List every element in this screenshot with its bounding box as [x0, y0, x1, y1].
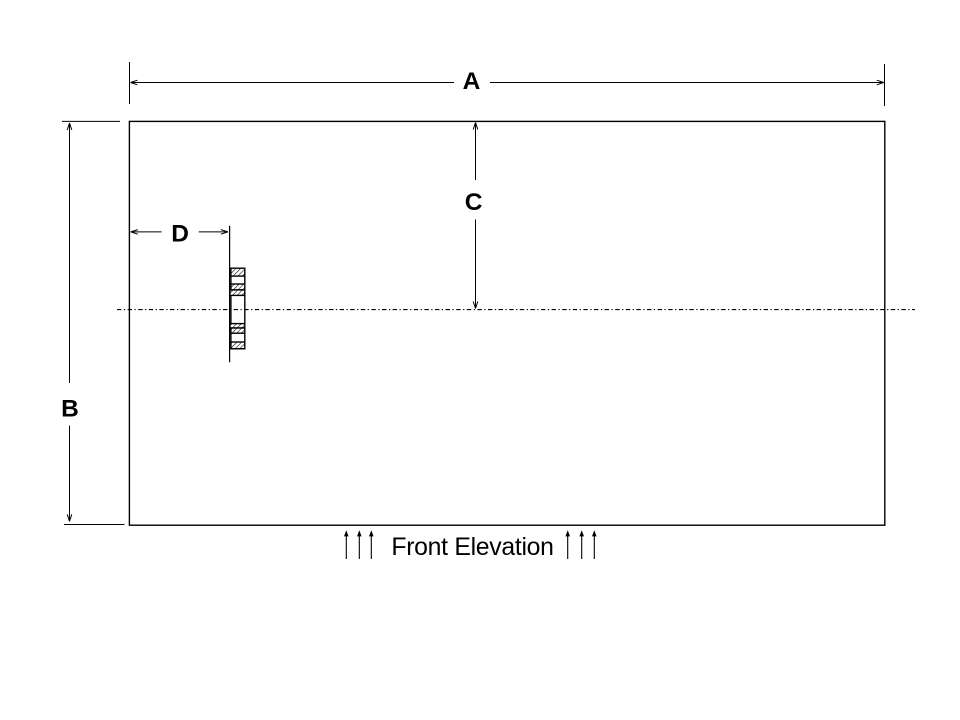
svg-text:B: B [61, 396, 79, 423]
svg-text:D: D [171, 220, 189, 247]
svg-text:C: C [465, 189, 483, 216]
svg-text:A: A [463, 68, 481, 95]
svg-text:Front Elevation: Front Elevation [391, 534, 553, 561]
